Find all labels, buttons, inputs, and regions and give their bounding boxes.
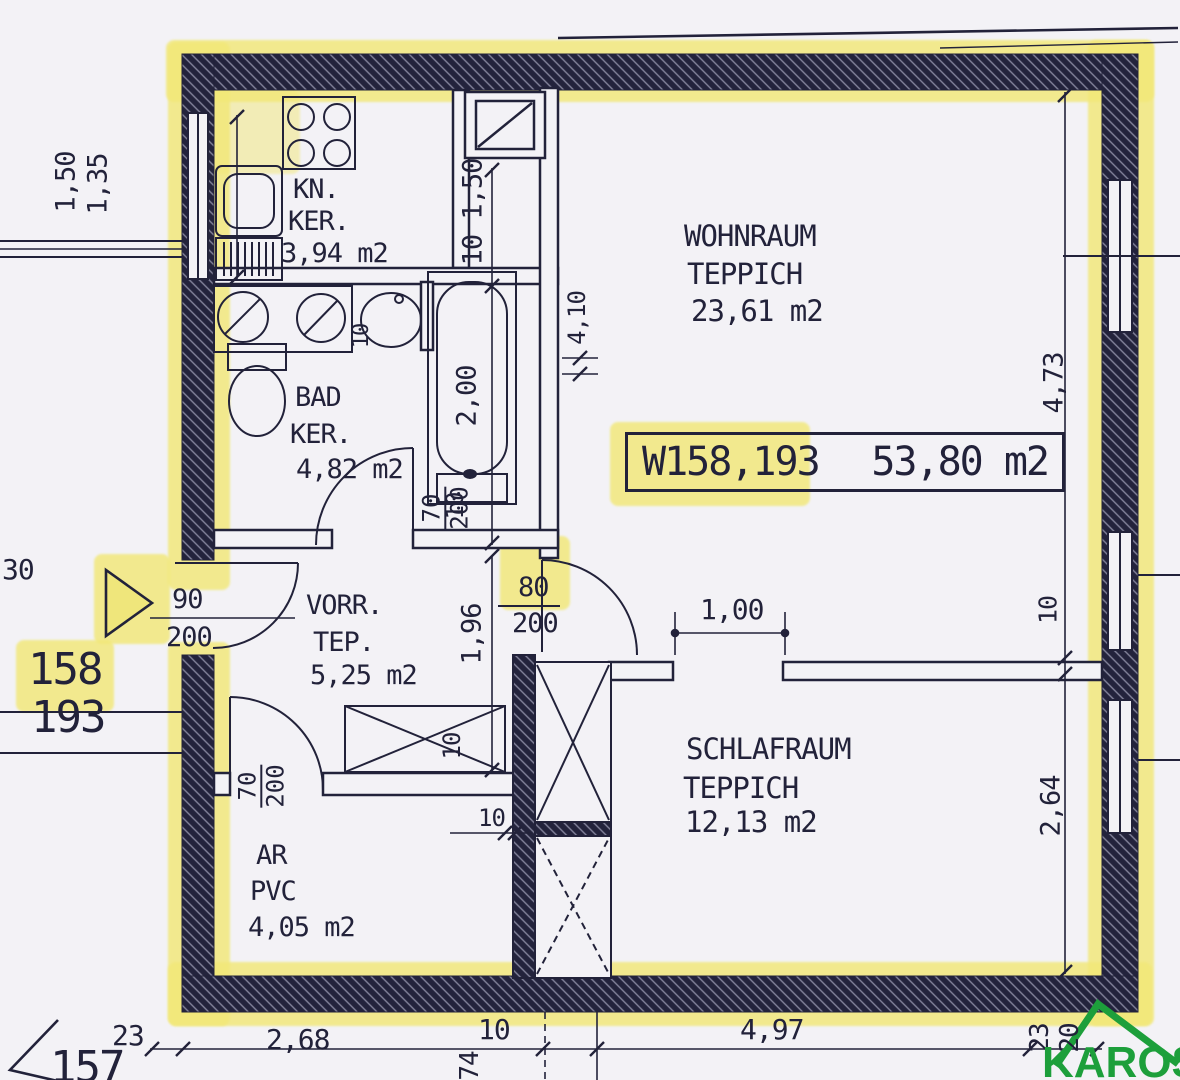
room-ar-area: 4,05 m2 <box>248 914 355 941</box>
floorplan-scan: KN. KER. 3,94 m2 BAD KER. 4,82 m2 VORR. … <box>0 0 1180 1080</box>
unit-code: W158,193 <box>642 439 819 485</box>
dim-bath-small: 10 <box>351 324 373 349</box>
unit-total-area: 53,80 m2 <box>871 439 1048 485</box>
ar-door-size: 70 200 <box>235 764 288 807</box>
room-schlafraum-floor: TEPPICH <box>683 774 798 803</box>
room-kn-name: KN. <box>293 176 339 203</box>
room-schlafraum-name: SCHLAFRAUM <box>686 735 851 764</box>
dim-tub-end: 10 <box>443 493 467 520</box>
entry-door-height: 200 <box>166 624 212 651</box>
dim-bottom-schlafraum: 4,97 <box>740 1016 803 1044</box>
room-bad-name: BAD <box>295 384 341 411</box>
dim-vorr-height: 1,96 <box>459 603 486 664</box>
dim-bottom-ar: 2,68 <box>266 1026 329 1054</box>
room-vorr-name: VORR. <box>306 592 382 619</box>
dim-bathtub-length: 2,00 <box>454 365 481 426</box>
wardrobe <box>345 706 505 772</box>
room-ar-name: AR <box>256 842 287 869</box>
karos-logo: KAROS <box>1042 1038 1180 1080</box>
unit-summary-box: W158,193 53,80 m2 <box>625 432 1065 492</box>
dim-left-window-b: 1,35 <box>85 153 112 214</box>
ar-door-height: 200 <box>261 764 289 807</box>
room-schlafraum-area: 12,13 m2 <box>685 808 817 837</box>
floorplan-linework <box>0 0 1180 1080</box>
schlafraum-door-width: 80 <box>518 574 549 601</box>
dim-bottom-wall: 23 <box>112 1022 144 1050</box>
room-vorr-floor: TEP. <box>313 629 374 656</box>
room-kn-area: 3,94 m2 <box>281 240 388 267</box>
room-wohnraum-floor: TEPPICH <box>687 260 802 289</box>
dim-right-top: 4,73 <box>1041 352 1068 413</box>
room-wohnraum-name: WOHNRAUM <box>684 222 816 251</box>
left-edge-label: 30 <box>2 556 34 584</box>
dim-ar-wall: 10 <box>478 806 505 830</box>
dim-right-mid: 10 <box>1036 596 1061 624</box>
dim-opening: 1,00 <box>700 596 763 624</box>
installation-shaft <box>513 655 611 978</box>
dim-bottom-rot: 74 <box>457 1051 483 1080</box>
room-bad-area: 4,82 m2 <box>296 456 403 483</box>
entry-door-width: 90 <box>172 586 203 613</box>
dim-closet: 10 <box>440 733 464 760</box>
room-wohnraum-area: 23,61 m2 <box>691 297 823 326</box>
room-kn-floor: KER. <box>288 208 349 235</box>
dim-left-window-a: 1,50 <box>53 151 80 212</box>
room-ar-floor: PVC <box>250 878 296 905</box>
dim-bottom-shaft: 10 <box>478 1016 510 1044</box>
dim-right-bottom: 2,64 <box>1038 775 1065 836</box>
room-vorr-area: 5,25 m2 <box>310 662 417 689</box>
schlafraum-door-height: 200 <box>512 610 558 637</box>
unit-number-upper: 158 <box>28 648 101 692</box>
unit-number-lower: 193 <box>31 696 104 740</box>
room-bad-floor: KER. <box>290 421 351 448</box>
chimney-duct <box>465 92 545 158</box>
dim-niche: 4,10 <box>565 291 589 345</box>
ar-door-width: 70 <box>233 772 261 801</box>
dim-kitchen-chain: 10 1,50 <box>460 159 487 266</box>
entry-arrow <box>106 570 152 636</box>
